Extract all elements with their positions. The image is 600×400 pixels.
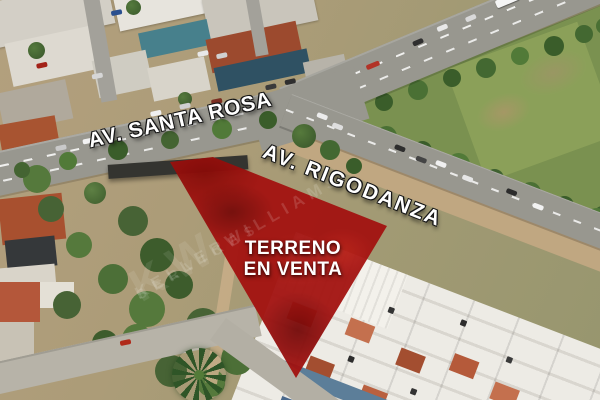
- aerial-photo: KW KELLERWILLIAMS SERVICES AV. SANTA ROS…: [0, 0, 600, 400]
- terracotta-building: [0, 282, 40, 322]
- scrub-trees: [84, 182, 106, 204]
- palm-center: [194, 370, 204, 380]
- corner-trees: [292, 124, 316, 148]
- for-sale-line2: EN VENTA: [212, 259, 374, 280]
- car: [197, 50, 209, 57]
- tree: [126, 0, 141, 15]
- tree: [28, 42, 45, 59]
- for-sale-label: TERRENO EN VENTA: [212, 238, 374, 280]
- white-roof-building: [40, 282, 74, 308]
- for-sale-line1: TERRENO: [212, 238, 374, 259]
- roadside-trees: [14, 162, 30, 178]
